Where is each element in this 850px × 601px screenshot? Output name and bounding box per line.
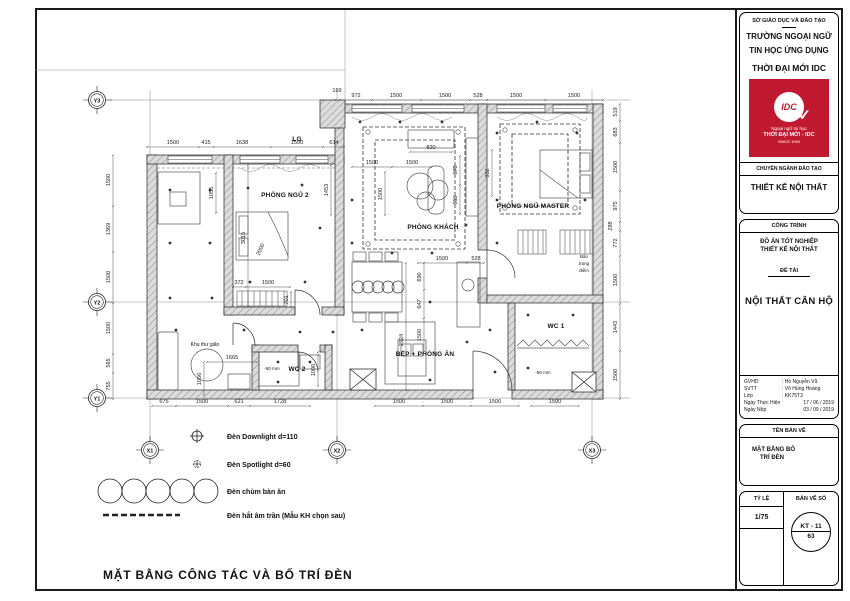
sheet-number: 63: [792, 532, 830, 551]
project-header: CÔNG TRÌNH: [740, 220, 838, 233]
person-value: : Võ Hùng Hoàng: [782, 386, 834, 393]
floor-plan-drawing: 1500 415 1638 1500 614 169 972 1500 1500…: [35, 8, 735, 591]
dim-label: 1638: [236, 140, 248, 146]
dim-label: 1665: [226, 355, 238, 361]
dim-label: 1500: [106, 322, 112, 334]
armchair: [428, 166, 444, 214]
grid-bubble-y2: Y2: [83, 288, 112, 316]
blanket: [540, 170, 578, 198]
person-label: GVHD: [744, 379, 782, 386]
ceiling-lamp-circle: [417, 192, 435, 210]
spotlight-symbol: [194, 461, 201, 468]
logo-subtitle-2: THỜI ĐẠI MỚI - IDC: [763, 132, 814, 138]
dim-label: 1500: [613, 369, 619, 381]
desk: [158, 172, 200, 224]
scale-sheet-block: TỶ LỆ 1/75 BẢN VẼ SỐ KT - 11 63: [739, 491, 839, 586]
caption: MẶT BẰNG CÔNG TÁC VÀ BỐ TRÍ ĐÈN: [103, 567, 352, 582]
dim-label: 1500: [417, 329, 423, 341]
pillow: [580, 175, 590, 193]
dim-label: 1500: [489, 399, 501, 405]
title-block: SỞ GIÁO DỤC VÀ ĐÀO TẠO TRƯỜNG NGOẠI NGỮ …: [735, 10, 841, 589]
dim-label: 683: [613, 127, 619, 136]
person-row: Lớp: KK75T3: [744, 393, 834, 400]
drawing-name-header: TÊN BẢN VẼ: [740, 425, 838, 438]
dim-label: 1500: [436, 256, 448, 262]
dim-label: 288: [608, 221, 614, 230]
dim-label: 1500: [439, 93, 451, 99]
dim-label: 1056: [197, 373, 203, 385]
dim-label: 975: [613, 201, 619, 210]
bed-master: [540, 150, 592, 198]
dim-label: 675: [159, 399, 168, 405]
dim-label: 1500: [393, 399, 405, 405]
dim-label: 701: [284, 295, 290, 304]
cooktop: [462, 279, 474, 291]
logo-subtitle-1: Ngoại ngữ tin học: [771, 126, 807, 131]
room-label-wc2: WC 2: [288, 366, 305, 373]
sheet-number-badge: KT - 11 63: [791, 512, 831, 552]
people-table: GVHD: Hồ Nguyễn Vũ SVTT: Võ Hùng Hoàng L…: [740, 375, 838, 418]
grid-bubbles: Y3 Y2 Y1 X1 X2 X3: [83, 86, 606, 464]
sheet-number-cell: BẢN VẼ SỐ KT - 11 63: [784, 492, 838, 585]
project-block: CÔNG TRÌNH ĐỒ ÁN TỐT NGHIỆP THIẾT KẾ NỘI…: [739, 219, 839, 419]
room-labels: PHÒNG NGỦ 2 PHÒNG KHÁCH PHÒNG NGỦ MASTER…: [191, 136, 590, 375]
room-label-kitchen: BẾP + PHÒNG ĂN: [396, 348, 455, 358]
level-note-wc1: -50 mm: [535, 370, 551, 375]
legend: Đèn Downlight d=110 Đèn Spotlight d=60 Đ…: [98, 429, 345, 520]
blanket: [268, 212, 288, 256]
person-label: SVTT: [744, 386, 782, 393]
desk-chair: [170, 192, 186, 206]
dim-label: 1453: [324, 184, 330, 196]
room-label-wc1: WC 1: [547, 323, 564, 330]
dim-label: 1500: [106, 271, 112, 283]
drawing-name: MẶT BẰNG BỐ TRÍ ĐÈN: [740, 438, 838, 462]
dim-label: 614: [329, 140, 338, 146]
round-table: [191, 349, 223, 381]
dim-label: 1500: [441, 399, 453, 405]
dim-label: 528: [473, 93, 482, 99]
legend-label: Đèn hắt âm trần (Mẫu KH chọn sau): [227, 511, 345, 520]
dim-label: 2000: [256, 243, 267, 257]
dim-label: 1443: [613, 321, 619, 333]
dim-label: 755: [106, 381, 112, 390]
person-row: Ngày Nộp03 / 09 / 2019: [744, 407, 834, 414]
dim-label: 519: [613, 107, 619, 116]
school-block: SỞ GIÁO DỤC VÀ ĐÀO TẠO TRƯỜNG NGOẠI NGỮ …: [739, 12, 839, 214]
room-label-bedroom2: PHÒNG NGỦ 2: [261, 190, 309, 199]
dim-label: 1000: [311, 364, 317, 376]
spotlight-circles: [366, 128, 577, 246]
dim-label: 1500: [510, 93, 522, 99]
dim-label: 1500: [613, 161, 619, 173]
grid-lines: [35, 10, 630, 441]
grid-label: X1: [147, 448, 154, 454]
drawing-name-line1: MẶT BẰNG BỐ: [752, 446, 838, 454]
dim-label: 647: [417, 299, 423, 308]
grid-bubble-y3: Y3: [83, 86, 112, 114]
person-value: : Hồ Nguyễn Vũ: [782, 379, 834, 386]
chair: [353, 313, 366, 322]
dining-table: [352, 262, 402, 312]
downlight-symbol: [190, 429, 204, 443]
chair: [385, 313, 398, 322]
drawing-caption: MẶT BẰNG CÔNG TÁC VÀ BỐ TRÍ ĐÈN: [103, 567, 352, 582]
dim-label: 1500: [613, 274, 619, 286]
dining-chandelier: [352, 281, 404, 293]
school-name-line1: TRƯỜNG NGOẠI NGỮ: [740, 32, 838, 42]
logo-circle-icon: IDC ✓: [774, 92, 804, 122]
school-logo: IDC ✓ Ngoại ngữ tin học THỜI ĐẠI MỚI - I…: [749, 79, 829, 157]
person-row: SVTT: Võ Hùng Hoàng: [744, 386, 834, 393]
person-value: : KK75T3: [782, 393, 834, 400]
dim-label: 169: [332, 88, 341, 94]
person-value: 17 / 06 / 2019: [782, 400, 834, 407]
chair: [353, 252, 366, 261]
dim-label: 772: [613, 238, 619, 247]
person-label: Ngày Thực Hiện: [744, 400, 782, 407]
dim-label: 820: [426, 145, 435, 151]
scale-cell: TỶ LỆ 1/75: [740, 492, 784, 585]
dim-label: 690: [417, 272, 423, 281]
dim-label: 1500: [378, 188, 384, 200]
person-label: Lớp: [744, 393, 782, 400]
chair: [369, 252, 382, 261]
grid-label: Y3: [94, 98, 101, 104]
dim-label: 415: [201, 140, 210, 146]
dim-label: 2924: [399, 334, 405, 346]
wardrobe-master: [518, 230, 593, 254]
person-value: 03 / 09 / 2019: [782, 407, 834, 414]
sheet-code: KT - 11: [792, 513, 830, 533]
legend-label: Đèn Downlight d=110: [227, 434, 298, 441]
project-line1: ĐỒ ÁN TỐT NGHIỆP: [740, 238, 838, 246]
project-line2: THIẾT KẾ NỘI THẤT: [740, 246, 838, 254]
room-label-master: PHÒNG NGỦ MASTER: [497, 201, 570, 210]
dim-label: 1728: [274, 399, 286, 405]
person-row: GVHD: Hồ Nguyễn Vũ: [744, 379, 834, 386]
grid-label: Y2: [94, 300, 101, 306]
drawing-name-line2: TRÍ ĐÈN: [752, 454, 838, 462]
person-row: Ngày Thực Hiện17 / 06 / 2019: [744, 400, 834, 407]
legend-label: Đèn Spotlight d=60: [227, 462, 291, 469]
department-name: SỞ GIÁO DỤC VÀ ĐÀO TẠO: [740, 18, 838, 24]
grid-bubble-x2: X2: [323, 436, 351, 464]
dim-label: 932: [485, 168, 491, 177]
pillow: [239, 216, 248, 234]
pillow: [580, 153, 590, 171]
school-brand: THỜI ĐẠI MỚI IDC: [740, 63, 838, 73]
dim-label: 1055: [209, 187, 215, 199]
room-label-loggia: LG: [292, 136, 301, 143]
level-note-wc2: -50 mm: [264, 366, 280, 371]
chandelier-symbol: [98, 479, 218, 503]
major-name: THIẾT KẾ NỘI THẤT: [740, 176, 838, 199]
dim-label: 565: [106, 358, 112, 367]
dim-label: 1500: [568, 93, 580, 99]
curtain-symbol: [497, 114, 587, 121]
dim-label: 972: [351, 93, 360, 99]
dim-label: 1500: [167, 140, 179, 146]
ceiling-lamp-circle: [428, 180, 448, 200]
topic-title: NỘI THẤT CĂN HỘ: [740, 296, 838, 307]
dressing-table-label: Bàn: [580, 254, 589, 259]
person-label: Ngày Nộp: [744, 407, 782, 414]
dressing-table-label: trang: [579, 261, 590, 266]
topic-header: ĐỀ TÀI: [740, 268, 838, 274]
sofa-relax: [158, 332, 178, 390]
room-label-living: PHÒNG KHÁCH: [407, 222, 458, 231]
logo-subtitle-3: SINCE 1994: [778, 139, 800, 144]
dim-label: 1500: [406, 160, 418, 166]
legend-label: Đèn chùm bàn ăn: [227, 489, 285, 496]
grid-label: Y1: [94, 396, 101, 402]
dim-label: 1500: [366, 160, 378, 166]
dim-label: 1500: [390, 93, 402, 99]
drawing-name-block: TÊN BẢN VẼ MẶT BẰNG BỐ TRÍ ĐÈN: [739, 424, 839, 485]
dim-label: 372: [234, 280, 243, 286]
stool: [228, 374, 250, 389]
dim-label: 1500: [196, 399, 208, 405]
logo-text: IDC: [781, 102, 797, 112]
grid-bubble-x1: X1: [136, 436, 164, 464]
dim-label: 919: [453, 195, 459, 204]
dim-label: 1500: [549, 399, 561, 405]
dim-label: 528: [471, 256, 480, 262]
shower-screen: [517, 340, 589, 346]
curtain-symbol: [352, 114, 452, 121]
dim-label: 1500: [262, 280, 274, 286]
kitchen-counter: [457, 262, 480, 327]
scale-value: 1/75: [740, 507, 783, 529]
grid-bubble-x3: X3: [578, 436, 606, 464]
scale-header: TỶ LỆ: [740, 492, 783, 507]
dim-label: 1500: [106, 174, 112, 186]
grid-label: X2: [334, 448, 341, 454]
sheet-number-header: BẢN VẼ SỐ: [796, 492, 826, 506]
chair: [369, 313, 382, 322]
dim-label: 978: [453, 165, 459, 174]
room-label-relax: Khu thư giãn: [191, 342, 220, 348]
divider: [782, 27, 796, 28]
tv-cabinet: [466, 138, 478, 216]
major-header: CHUYÊN NGÀNH ĐÀO TẠO: [740, 162, 838, 176]
dressing-table-label: điểm: [579, 267, 589, 273]
dim-label: 621: [234, 399, 243, 405]
dim-label: 1369: [106, 223, 112, 235]
school-name-line2: TIN HỌC ỨNG DỤNG: [740, 46, 838, 56]
grid-label: X3: [589, 448, 596, 454]
wardrobe-2: [237, 291, 287, 306]
check-icon: ✓: [798, 106, 811, 124]
dim-label: 3015: [241, 232, 247, 244]
